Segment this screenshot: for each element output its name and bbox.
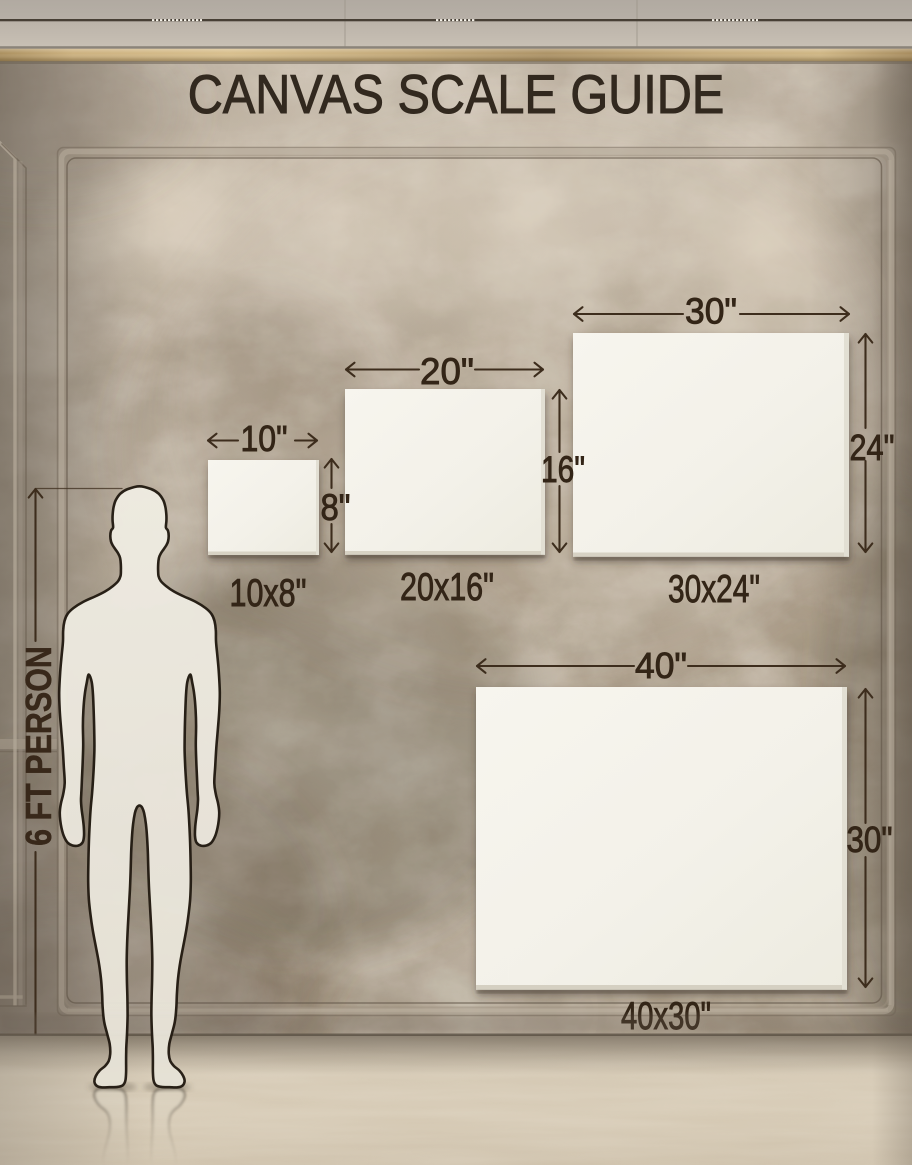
svg-text:6 FT PERSON: 6 FT PERSON	[20, 646, 60, 846]
svg-text:20": 20"	[420, 351, 474, 392]
svg-text:20x16": 20x16"	[400, 567, 494, 609]
svg-text:CANVAS SCALE GUIDE: CANVAS SCALE GUIDE	[188, 63, 725, 124]
svg-text:10": 10"	[241, 419, 288, 459]
svg-text:30": 30"	[685, 291, 737, 331]
svg-text:30": 30"	[846, 820, 892, 861]
svg-text:16": 16"	[541, 450, 585, 491]
svg-text:24": 24"	[850, 429, 895, 469]
svg-text:8": 8"	[321, 487, 351, 528]
svg-text:10x8": 10x8"	[230, 573, 307, 615]
svg-text:30x24": 30x24"	[668, 568, 760, 610]
svg-text:40": 40"	[635, 646, 687, 686]
